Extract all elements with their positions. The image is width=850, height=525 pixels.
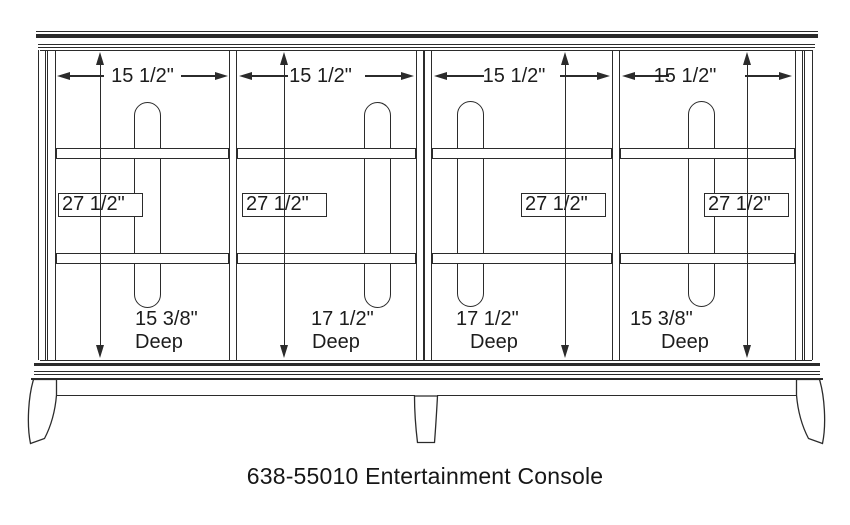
depth-word-bay1: Deep — [135, 331, 183, 353]
left-arrowhead — [57, 72, 70, 80]
down-arrowhead — [96, 345, 104, 358]
dimension-line — [565, 62, 566, 348]
right-arrowhead — [215, 72, 228, 80]
depth-value-bay1: 15 3/8" — [135, 308, 198, 330]
right-leg — [797, 380, 825, 444]
depth-word-bay4: Deep — [661, 331, 709, 353]
depth-word-bay3: Deep — [470, 331, 518, 353]
drawing-caption: 638-55010 Entertainment Console — [0, 463, 850, 490]
left-arrowhead — [239, 72, 252, 80]
width-dimension-label: 15 1/2" — [104, 65, 181, 88]
right-arrowhead — [779, 72, 792, 80]
dimension-line — [181, 75, 215, 76]
height-dimension-line-bay3 — [561, 52, 570, 358]
down-arrowhead — [280, 345, 288, 358]
shelf-bay1-lower — [56, 253, 229, 264]
width-dimension-bay1: 15 1/2" — [57, 64, 228, 88]
shelf-bay2-upper — [237, 148, 416, 159]
dimension-line — [100, 62, 101, 348]
width-dimension-bay4: 15 1/2" — [622, 64, 792, 88]
shelf-bay2-lower — [237, 253, 416, 264]
down-arrowhead — [561, 345, 569, 358]
center-leg — [415, 396, 438, 443]
cable-slot-bay2 — [364, 102, 391, 308]
left-arrowhead — [434, 72, 447, 80]
width-dimension-label: 15 1/2" — [647, 65, 724, 88]
shelf-bay3-lower — [432, 253, 612, 264]
right-arrowhead — [401, 72, 414, 80]
height-dimension-line-bay4 — [743, 52, 752, 358]
width-dimension-bay3: 15 1/2" — [434, 64, 610, 88]
shelf-bay4-lower — [620, 253, 795, 264]
height-dimension-line-bay2 — [280, 52, 289, 358]
left-arrowhead — [622, 72, 635, 80]
depth-value-bay4: 15 3/8" — [630, 308, 693, 330]
shelf-bay1-upper — [56, 148, 229, 159]
width-dimension-bay2: 15 1/2" — [239, 64, 414, 88]
dimension-line — [365, 75, 401, 76]
depth-value-bay2: 17 1/2" — [311, 308, 374, 330]
dimension-line — [747, 62, 748, 348]
depth-word-bay2: Deep — [312, 331, 360, 353]
height-dimension-line-bay1 — [96, 52, 105, 358]
width-dimension-label: 15 1/2" — [282, 65, 359, 88]
dimension-line — [284, 62, 285, 348]
left-leg — [28, 380, 56, 444]
down-arrowhead — [743, 345, 751, 358]
shelf-bay3-upper — [432, 148, 612, 159]
shelf-bay4-upper — [620, 148, 795, 159]
right-arrowhead — [597, 72, 610, 80]
width-dimension-label: 15 1/2" — [476, 65, 553, 88]
entertainment-console-drawing: 15 1/2" 15 1/2" 15 1/2" 15 1/2" 27 1/2" … — [0, 0, 850, 525]
cable-slot-bay3 — [457, 101, 484, 307]
depth-value-bay3: 17 1/2" — [456, 308, 519, 330]
